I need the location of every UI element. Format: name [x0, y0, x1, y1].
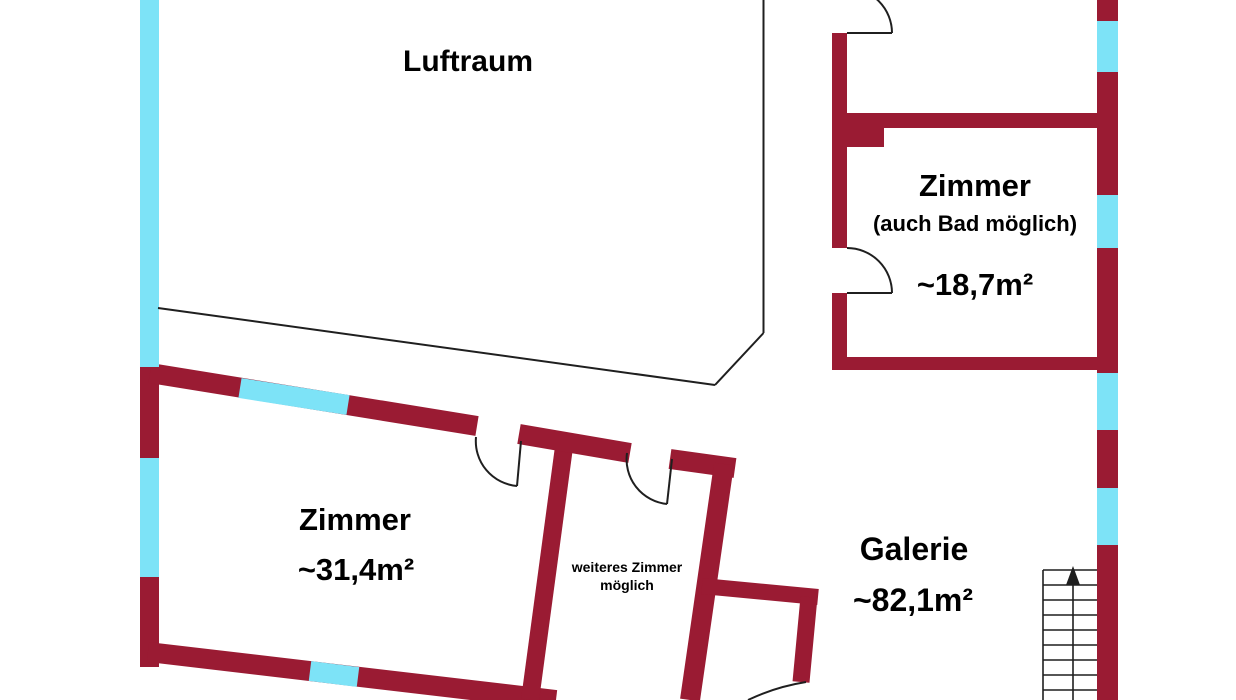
floor-plan-svg: Luftraum Zimmer (auch Bad möglich) ~18,7… — [0, 0, 1236, 700]
stairs-up-arrow-icon — [1066, 566, 1080, 585]
labels: Luftraum Zimmer (auch Bad möglich) ~18,7… — [298, 45, 1077, 618]
wall-pier — [845, 128, 884, 147]
floor-plan-canvas: Luftraum Zimmer (auch Bad möglich) ~18,7… — [0, 0, 1236, 700]
room-label-weiteres-line2: möglich — [600, 577, 654, 593]
door-arc — [748, 682, 806, 700]
room-label-zimmer-bad-subtitle: (auch Bad möglich) — [873, 211, 1077, 236]
room-label-zimmer31-area: ~31,4m² — [298, 552, 414, 587]
void-boundary-corner — [715, 333, 764, 385]
room-label-weiteres-line1: weiteres Zimmer — [571, 559, 683, 575]
room-label-zimmer-bad-area: ~18,7m² — [917, 267, 1033, 302]
wall-alcove-top — [702, 586, 818, 597]
window-leftroom-top — [240, 388, 348, 405]
room-label-zimmer31-name: Zimmer — [299, 502, 411, 537]
room-label-zimmer-bad-name: Zimmer — [919, 168, 1031, 203]
door-arc — [847, 0, 892, 33]
room-label-luftraum: Luftraum — [403, 45, 533, 78]
door-arc — [476, 437, 517, 486]
door-arc — [627, 453, 667, 504]
wall-middleroom-left — [530, 447, 564, 700]
room-label-galerie-name: Galerie — [860, 531, 969, 567]
window-leftroom-bottom — [310, 671, 358, 677]
staircase — [1043, 570, 1097, 700]
door-leaf — [517, 441, 521, 486]
wall-middleroom-top-a — [519, 434, 630, 453]
room-label-galerie-area: ~82,1m² — [853, 582, 973, 618]
windows — [150, 0, 1108, 677]
wall-alcove-right — [801, 597, 809, 682]
void-boundary-slant — [158, 308, 715, 385]
door-arc — [847, 248, 892, 293]
